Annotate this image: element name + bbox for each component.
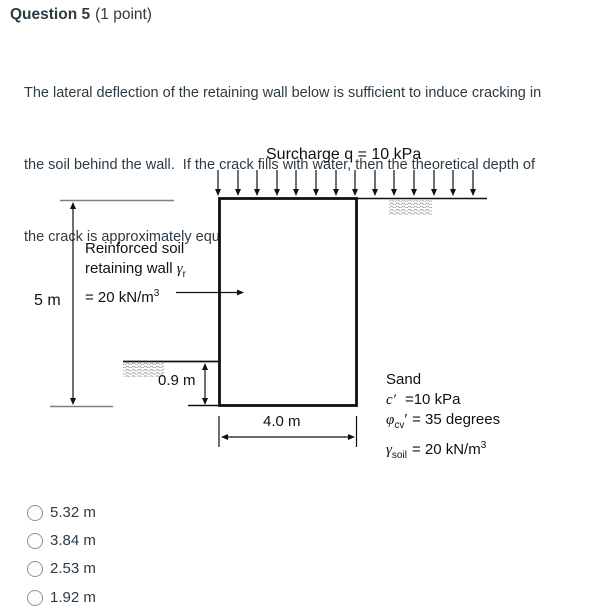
sand-unit-weight-line: γsoil= 20 kN/m3	[386, 436, 500, 466]
wall-label-line2: retaining wall γr	[85, 259, 186, 285]
answer-label-1[interactable]: 5.32 m	[50, 504, 96, 521]
answer-radio-4[interactable]	[27, 590, 43, 606]
answer-option-row-4[interactable]: 1.92 m	[27, 589, 96, 606]
wall-label-line3: = 20 kN/m3	[85, 284, 186, 308]
base-width-label: 4.0 m	[263, 413, 301, 430]
wall-material-label: Reinforced soil retaining wall γr = 20 k…	[85, 239, 186, 308]
answer-radio-1[interactable]	[27, 505, 43, 521]
sand-friction-line: φcv′= 35 degrees	[386, 410, 500, 436]
answer-label-3[interactable]: 2.53 m	[50, 560, 96, 577]
answer-radio-3[interactable]	[27, 561, 43, 577]
c-symbol: c′	[386, 392, 396, 408]
wall-rect	[220, 199, 357, 406]
quiz-question-page: Question 5(1 point) The lateral deflecti…	[0, 0, 616, 610]
embedment-depth-label: 0.9 m	[158, 372, 196, 389]
answer-option-row-2[interactable]: 3.84 m	[27, 532, 96, 549]
surcharge-label: Surcharge q = 10 kPa	[266, 146, 421, 164]
sand-title: Sand	[386, 370, 500, 390]
sand-properties-label: Sand c′=10 kPa φcv′= 35 degrees γsoil= 2…	[386, 370, 500, 466]
answer-radio-2[interactable]	[27, 533, 43, 549]
answer-option-row-3[interactable]: 2.53 m	[27, 560, 96, 577]
answer-label-4[interactable]: 1.92 m	[50, 589, 96, 606]
wall-label-line1: Reinforced soil	[85, 239, 186, 259]
wall-height-label: 5 m	[34, 292, 61, 310]
sand-cohesion-line: c′=10 kPa	[386, 390, 500, 410]
answer-label-2[interactable]: 3.84 m	[50, 532, 96, 549]
answer-option-row-1[interactable]: 5.32 m	[27, 504, 96, 521]
surcharge-load-arrows	[218, 170, 473, 190]
